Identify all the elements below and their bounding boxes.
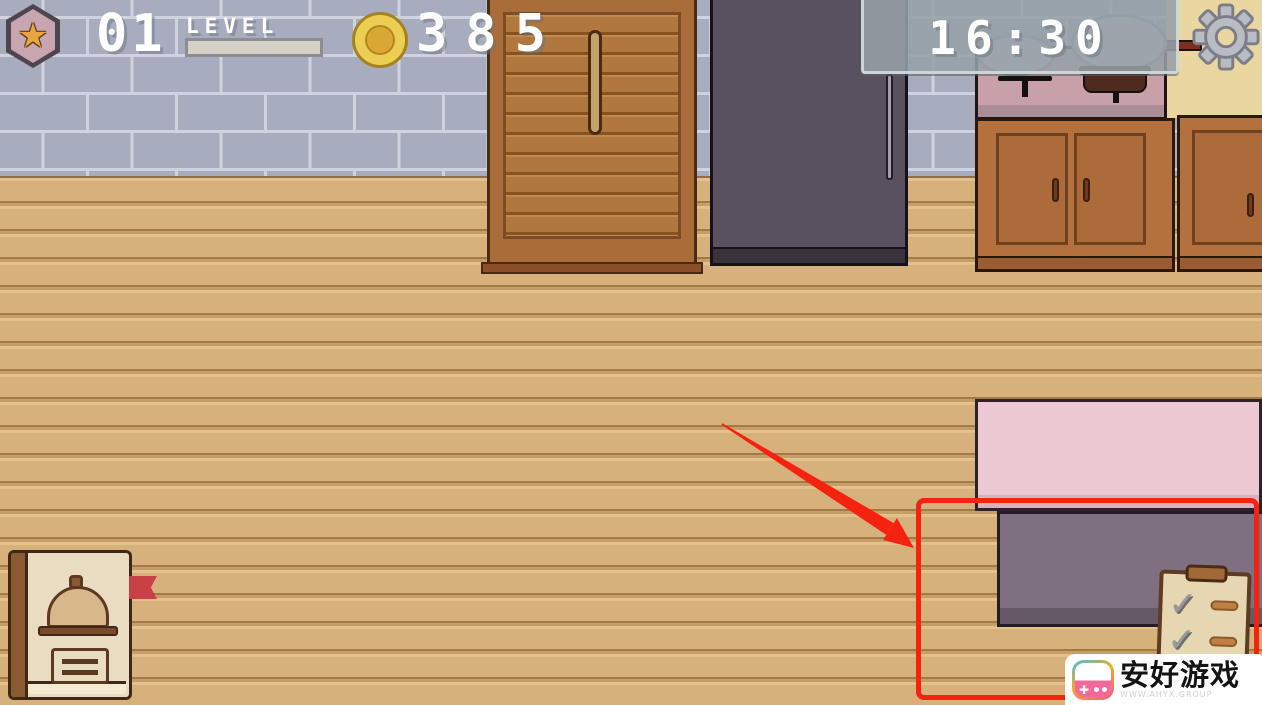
recipe-book-button[interactable] (8, 550, 132, 700)
label-line (62, 659, 98, 664)
watermark-url: WWW.AHYX.GROUP (1120, 691, 1240, 699)
level-value: 01 (96, 4, 167, 64)
task-line (1210, 600, 1238, 611)
level-progress-bar (185, 38, 323, 57)
star-badge-icon: ★ (18, 19, 48, 53)
level-label: LEVEL (186, 14, 279, 38)
lower-cabinet-right (1177, 115, 1262, 272)
clipboard-clip (1185, 564, 1228, 582)
pantry-door-base (481, 262, 703, 274)
pink-counter[interactable] (975, 399, 1262, 511)
task-line (1209, 636, 1237, 647)
cabinet-door (996, 133, 1068, 245)
cabinet-handle (1247, 193, 1254, 217)
coin-inner (365, 25, 395, 55)
watermark: ✚ 安好游戏 WWW.AHYX.GROUP (1065, 654, 1262, 705)
cloche-plate (38, 626, 118, 636)
lower-cabinet-double (975, 118, 1175, 272)
level-badge-inner: ★ (11, 9, 55, 63)
cabinet-base (978, 256, 1172, 269)
cabinet-base (1180, 256, 1262, 269)
cloche-icon (47, 586, 109, 628)
game-controller-icon: ✚ (1072, 660, 1114, 700)
check-icon: ✓ (1168, 589, 1198, 620)
task-row: ✓ (1168, 586, 1241, 624)
right-burner-stub (1113, 93, 1119, 103)
coin-icon (352, 12, 408, 68)
book-spine (11, 553, 28, 697)
timer-value: 16:30 (928, 3, 1111, 65)
gear-icon (1190, 2, 1262, 72)
cabinet-door (1192, 130, 1262, 245)
refrigerator-base (713, 247, 905, 263)
timer-panel: 16:30 (861, 0, 1179, 74)
cabinet-handle (1052, 178, 1059, 202)
game-screen: ✓ ✓ ★ 01 LEVEL 385 16:30 (0, 0, 1262, 705)
book-label-box (51, 648, 109, 684)
check-icon: ✓ (1167, 625, 1197, 656)
coin-count: 385 (416, 4, 564, 64)
refrigerator-handle (886, 74, 893, 180)
stove-front-band (978, 105, 1164, 117)
watermark-brand: 安好游戏 (1120, 661, 1240, 690)
cabinet-handle (1083, 178, 1090, 202)
pantry-door-handle (588, 30, 602, 135)
dpad-icon: ✚ (1079, 683, 1089, 697)
cabinet-door (1074, 133, 1146, 245)
label-line (62, 670, 98, 675)
settings-button[interactable] (1190, 2, 1262, 72)
pot-base (1083, 73, 1147, 93)
left-burner-stub (1022, 81, 1028, 97)
